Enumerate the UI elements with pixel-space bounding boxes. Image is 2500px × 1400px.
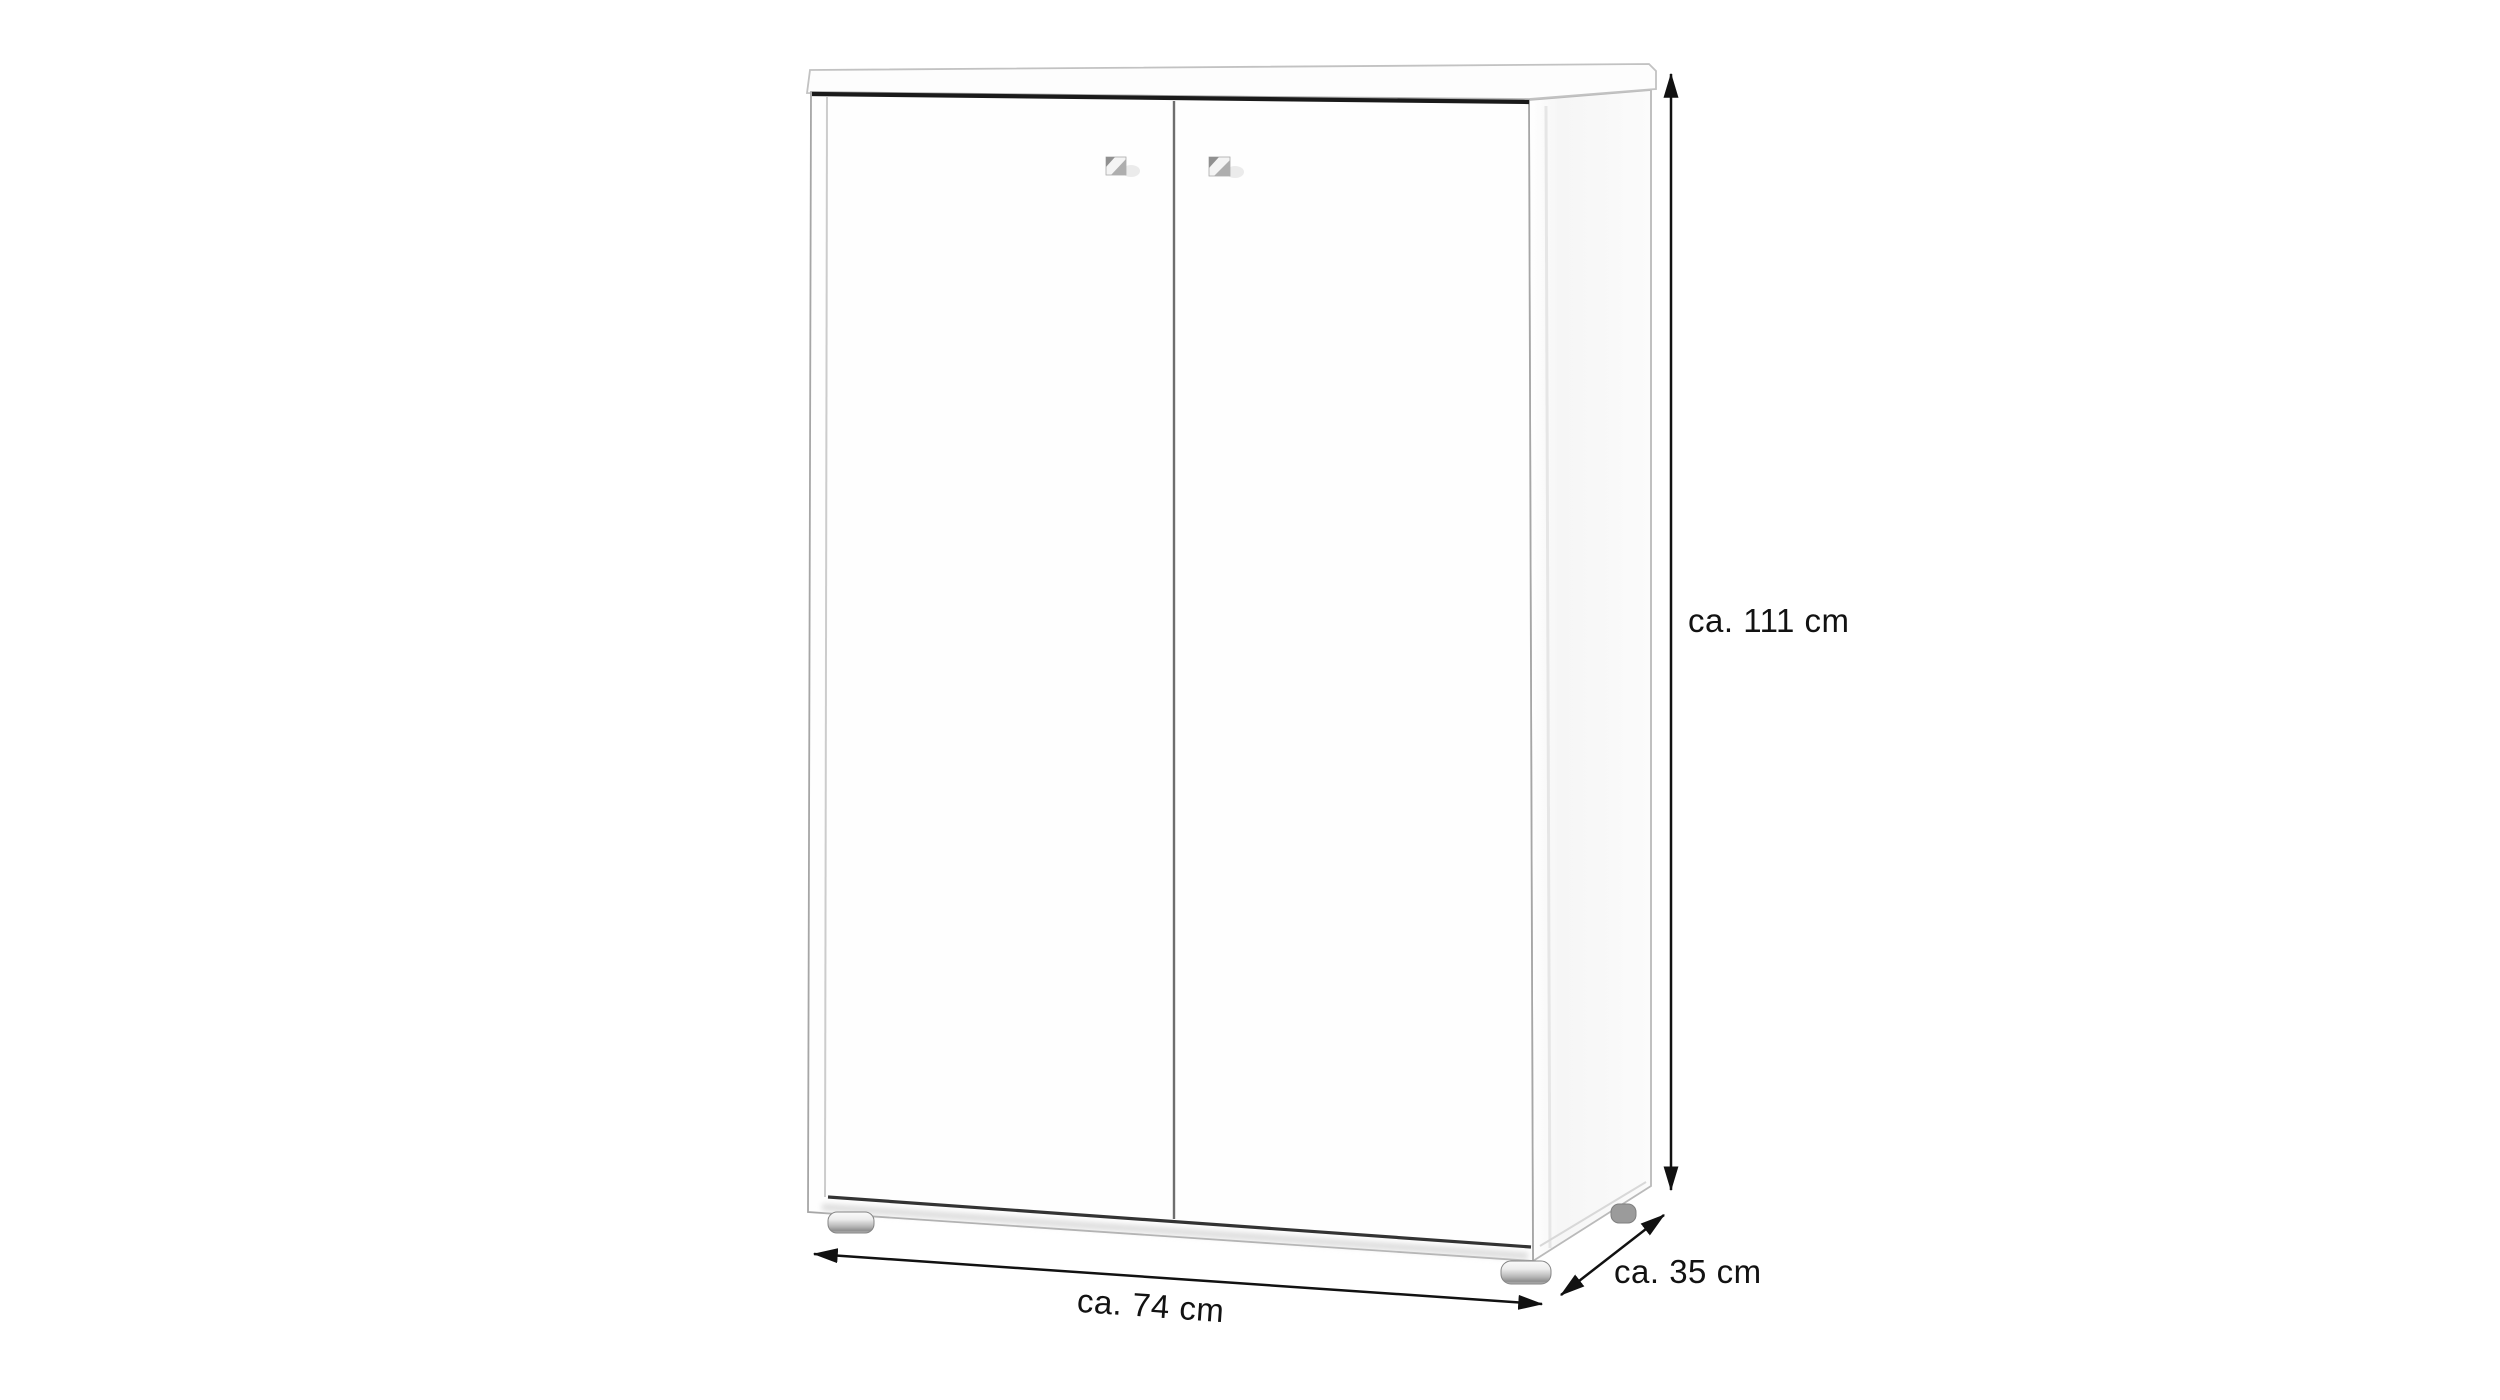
foot-front-left (828, 1212, 874, 1233)
cabinet (807, 64, 1656, 1284)
cabinet-dimension-diagram: ca. 111 cm ca. 74 cm ca. 35 cm (0, 0, 2500, 1400)
dimension-diagram-canvas: ca. 111 cm ca. 74 cm ca. 35 cm (0, 0, 2500, 1400)
cabinet-front-face (808, 92, 1533, 1261)
foot-back-right (1611, 1204, 1636, 1223)
height-dimension-label: ca. 111 cm (1688, 602, 1850, 639)
foot-front-right (1501, 1261, 1551, 1284)
depth-dimension-label: ca. 35 cm (1614, 1253, 1762, 1290)
width-dimension-label: ca. 74 cm (1076, 1282, 1226, 1329)
